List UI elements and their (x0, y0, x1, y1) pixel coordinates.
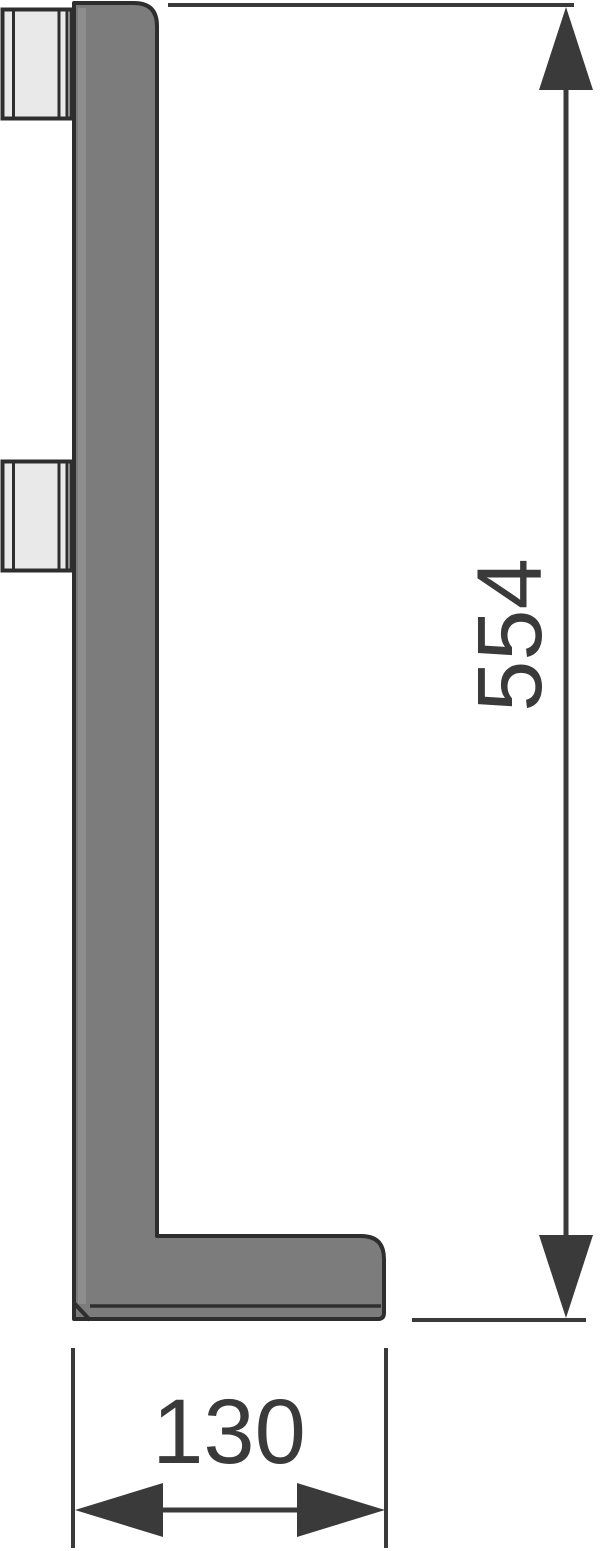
arrow-down-icon (539, 1235, 593, 1318)
height-dimension-label: 554 (464, 558, 556, 712)
arrow-right-icon (297, 1483, 385, 1537)
arrow-up-icon (539, 7, 593, 90)
l-profile (74, 3, 384, 1320)
profile-left-highlight (78, 8, 86, 1304)
mounting-clip-top (3, 10, 72, 119)
l-profile-shape (74, 3, 384, 1319)
arrow-left-icon (75, 1483, 163, 1537)
profile-diagram (0, 0, 600, 1551)
mounting-clip-middle (3, 462, 72, 571)
technical-drawing: 554 130 (0, 0, 600, 1551)
width-dimension-label: 130 (152, 1386, 306, 1478)
